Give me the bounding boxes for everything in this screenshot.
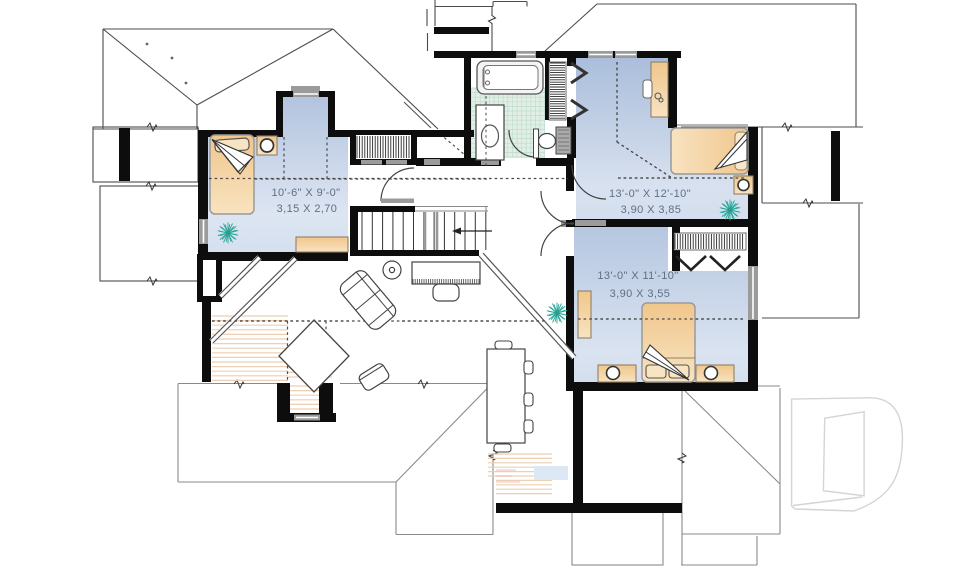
svg-text:3,90 X 3,55: 3,90 X 3,55 [610, 288, 671, 300]
svg-text:3,15 X 2,70: 3,15 X 2,70 [277, 203, 338, 215]
svg-text:10'-6" X 9'-0": 10'-6" X 9'-0" [272, 187, 341, 199]
svg-text:13'-0" X 11'-10": 13'-0" X 11'-10" [597, 270, 678, 282]
svg-text:13'-0" X 12'-10": 13'-0" X 12'-10" [609, 188, 691, 200]
svg-text:3,90 X 3,85: 3,90 X 3,85 [621, 204, 682, 216]
